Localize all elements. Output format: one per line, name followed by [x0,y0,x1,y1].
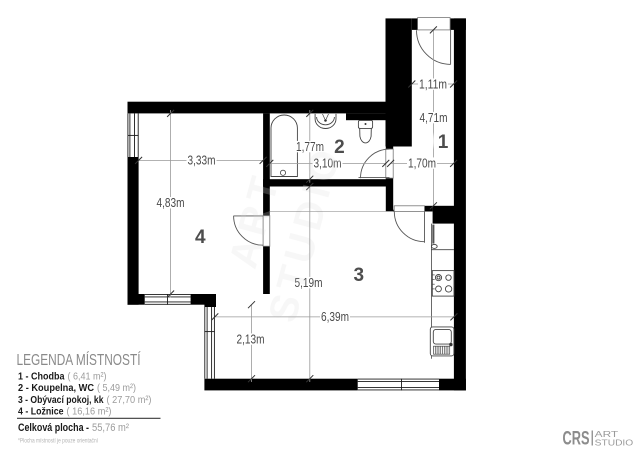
svg-text:1,70m: 1,70m [408,156,436,171]
svg-text:2: 2 [334,137,345,158]
svg-text:1: 1 [438,132,449,153]
svg-text:1,11m: 1,11m [419,77,447,92]
svg-text:2 - Koupelna, WC( 5,49 m²): 2 - Koupelna, WC( 5,49 m²) [18,382,136,394]
svg-text:LEGENDA MÍSTNOSTÍ: LEGENDA MÍSTNOSTÍ [17,350,141,369]
svg-text:*Plocha místností je pouze ori: *Plocha místností je pouze orientační [18,438,98,445]
svg-text:4,71m: 4,71m [420,110,448,125]
svg-text:1 - Chodba( 6,41 m²): 1 - Chodba( 6,41 m²) [18,371,107,383]
svg-text:6,39m: 6,39m [321,309,349,324]
svg-text:CRS: CRS [563,429,590,450]
svg-text:2,13m: 2,13m [237,332,265,347]
svg-text:Celková plocha -55,76 m²: Celková plocha -55,76 m² [18,422,129,434]
svg-text:3: 3 [354,265,365,286]
svg-text:4,83m: 4,83m [157,195,185,210]
svg-text:4: 4 [195,227,206,248]
svg-text:3 - Obývací pokoj, kk( 27,70 m: 3 - Obývací pokoj, kk( 27,70 m²) [18,394,152,406]
svg-text:STUDIO: STUDIO [595,437,634,447]
svg-text:3,33m: 3,33m [188,153,216,168]
